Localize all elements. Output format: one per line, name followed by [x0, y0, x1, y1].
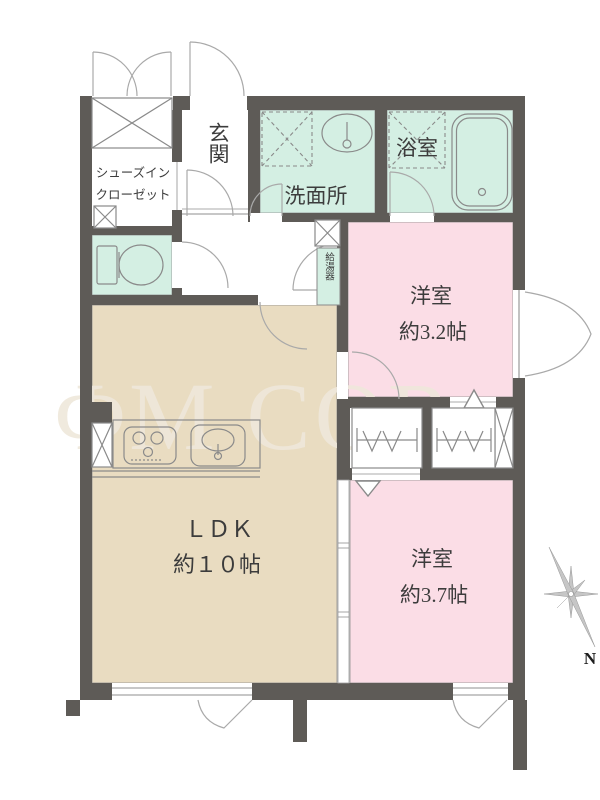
- balcony-door-swing-icon: [453, 700, 507, 728]
- washroom-label: 洗面所: [285, 184, 348, 208]
- meter-box-icon: [94, 206, 116, 228]
- bathroom-label: 浴室: [396, 136, 438, 160]
- toilet-door-swing-icon: [182, 242, 228, 288]
- shoes-closet-label: シューズイン: [96, 165, 170, 180]
- water-heater-box: 給湯器: [317, 248, 340, 305]
- entrance-label: 玄関: [206, 122, 230, 164]
- window-ldk-balcony: [112, 683, 252, 728]
- room-bathroom: [387, 110, 513, 213]
- shoes-closet-label: クローゼット: [95, 188, 170, 202]
- floor-plan-svg: ΦM COR: [0, 0, 600, 800]
- shaft-box-icon: [315, 220, 340, 246]
- closet-left: [352, 408, 422, 468]
- sliding-door-partition: [338, 480, 349, 683]
- storage-double-door-swing-icon: [93, 52, 171, 96]
- floor-plan-page: ΦM COR: [0, 0, 600, 800]
- north-label: N: [584, 649, 597, 668]
- bedroom-3-7-size: 約3.7帖: [400, 583, 468, 607]
- closet-right: [432, 408, 495, 468]
- room-toilet: [92, 235, 172, 295]
- casement-window-icon: [525, 292, 591, 376]
- storage-box-icon: [92, 98, 172, 148]
- bedroom-3-7-label: 洋室: [411, 547, 453, 571]
- ldk-label: ＬＤＫ: [185, 517, 254, 542]
- entrance-door-swing-icon: [190, 42, 244, 96]
- closet-shaft-icon: [495, 408, 513, 468]
- bedroom-3-2-size: 約3.2帖: [399, 320, 467, 344]
- window-bedroom-balcony: [453, 683, 508, 728]
- bedroom-3-2-label: 洋室: [410, 284, 452, 308]
- ldk-size: 約１０帖: [173, 552, 261, 577]
- pipe-shaft-icon: [92, 423, 112, 467]
- window-bedroom-3-2: [513, 290, 591, 378]
- balcony-door-swing-icon: [198, 700, 252, 728]
- room-bedroom-3-7: [350, 480, 513, 683]
- room-ldk: [92, 305, 337, 683]
- compass-icon: N: [544, 547, 598, 668]
- water-heater-label: 給湯器: [323, 251, 335, 280]
